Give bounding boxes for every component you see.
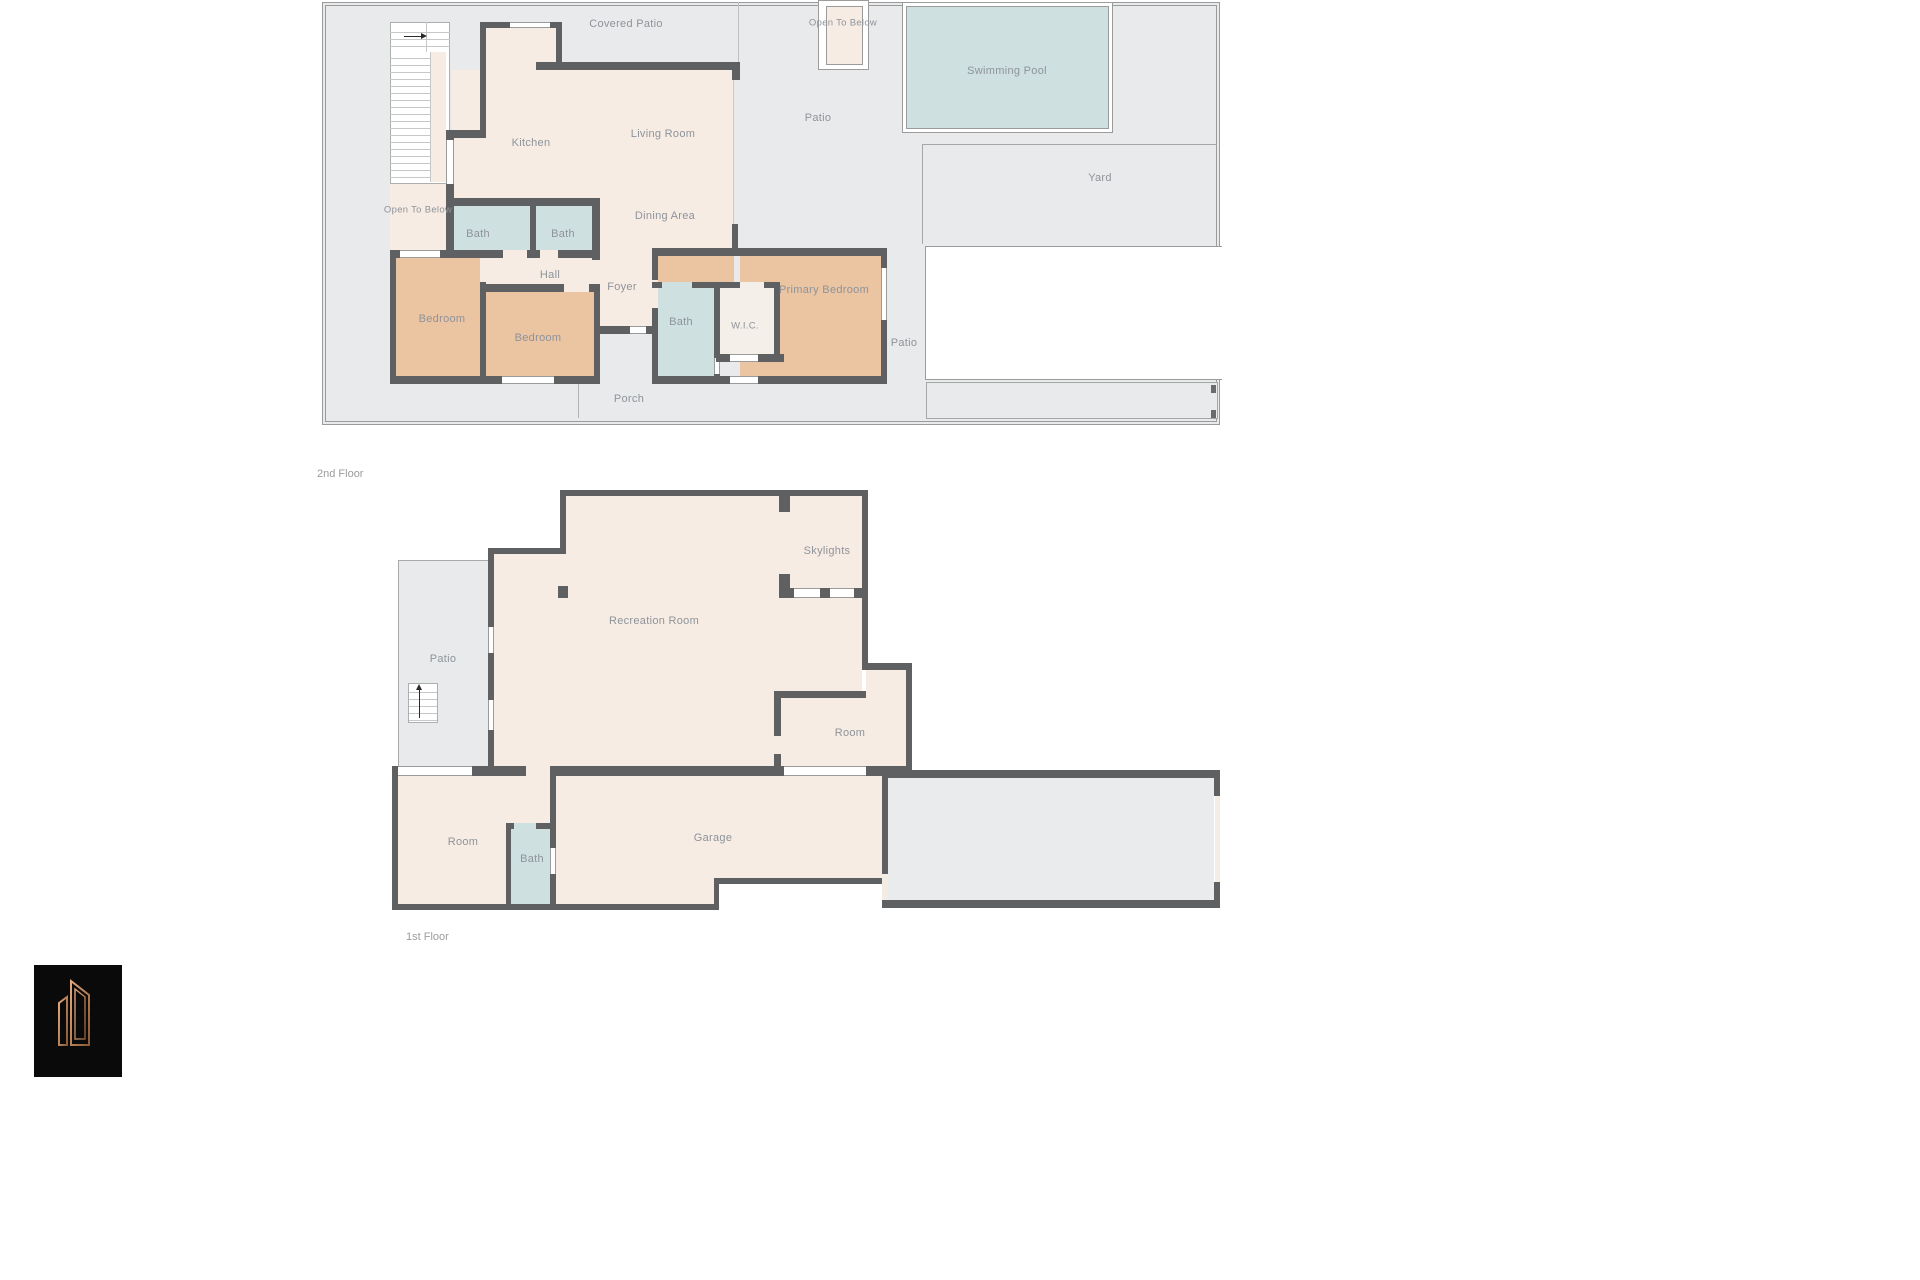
- wall: [536, 62, 732, 70]
- bath-suite-floor: [658, 286, 714, 376]
- wall: [1214, 882, 1220, 908]
- room-label-wic: W.I.C.: [731, 321, 759, 332]
- window: [730, 376, 758, 384]
- window: [630, 326, 646, 334]
- patio-1f: [398, 560, 488, 770]
- logo-building-icon: [56, 977, 100, 1049]
- room-label-porch: Porch: [614, 393, 644, 405]
- wall: [450, 198, 598, 206]
- wall: [488, 548, 566, 554]
- carport-opening: [1215, 796, 1220, 882]
- wall: [392, 776, 398, 910]
- room-label-bedroom-left: Bedroom: [419, 313, 466, 325]
- room-label-living-room: Living Room: [631, 128, 695, 140]
- stair-direction-arrow: [419, 690, 420, 718]
- stair-wall-strip: [430, 52, 446, 182]
- door-opening: [564, 284, 589, 292]
- open-to-below-inner: [826, 6, 863, 65]
- room-label-open-to-below-left: Open To Below: [384, 205, 452, 216]
- wall: [779, 490, 790, 512]
- wall: [506, 823, 511, 906]
- dining-floor: [598, 198, 734, 248]
- stair-treads: [409, 686, 437, 722]
- skylight-window: [794, 588, 820, 598]
- room-label-covered-patio: Covered Patio: [589, 18, 663, 30]
- gate-hinge-icon: [1211, 410, 1216, 418]
- room-label-recreation: Recreation Room: [609, 615, 699, 627]
- window: [446, 140, 454, 184]
- room-label-hall: Hall: [540, 269, 560, 281]
- wall: [488, 554, 494, 770]
- room-label-patio-right: Patio: [891, 337, 918, 349]
- porch-divider: [578, 382, 579, 418]
- bath-hall-floor: [508, 776, 554, 826]
- door-opening: [514, 823, 536, 829]
- door-opening: [503, 250, 527, 258]
- wall: [652, 248, 886, 256]
- wall: [882, 900, 1220, 908]
- wall: [906, 670, 912, 774]
- door-opening: [526, 766, 550, 776]
- open-to-below-box: [818, 0, 869, 70]
- window: [730, 354, 758, 362]
- garage-door-opening: [784, 766, 866, 776]
- wall: [390, 376, 600, 384]
- suite-corridor-floor: [658, 254, 734, 282]
- wall: [882, 770, 1220, 778]
- nook-floor: [866, 666, 908, 696]
- room-label-bath-mid: Bath: [551, 228, 575, 240]
- skylight-window: [830, 588, 854, 598]
- floor2-caption: 2nd Floor: [317, 468, 363, 480]
- room-label-patio-top: Patio: [805, 112, 832, 124]
- garage-step-cut: [719, 884, 889, 908]
- stair-arrow-head-icon: [421, 33, 427, 39]
- window: [488, 700, 494, 730]
- wall: [652, 248, 658, 384]
- bath-left-floor: [452, 204, 532, 254]
- door-opening: [662, 282, 692, 288]
- glass-wall: [733, 70, 734, 246]
- wall: [862, 663, 912, 670]
- window: [510, 22, 550, 28]
- room-label-room-sw: Room: [448, 836, 479, 848]
- carport-floor: [888, 778, 1214, 900]
- room-label-garage: Garage: [694, 832, 733, 844]
- wall: [560, 490, 566, 554]
- door-opening: [540, 250, 558, 258]
- room-label-swimming-pool: Swimming Pool: [967, 65, 1047, 77]
- wall: [480, 22, 486, 138]
- window: [488, 627, 494, 653]
- room-label-open-to-below-top: Open To Below: [809, 18, 877, 29]
- window: [550, 848, 556, 874]
- room-label-yard: Yard: [1088, 172, 1112, 184]
- room-label-bath-left: Bath: [466, 228, 490, 240]
- wall: [774, 691, 781, 774]
- wall: [594, 326, 658, 334]
- room-label-bedroom-mid: Bedroom: [515, 332, 562, 344]
- room-label-bath-suite: Bath: [669, 316, 693, 328]
- stair-treads: [390, 52, 430, 182]
- floor-plan-sheet: Covered Patio Open To Below Swimming Poo…: [0, 0, 1920, 1280]
- window: [502, 376, 554, 384]
- wall: [530, 204, 536, 256]
- wall: [774, 691, 866, 698]
- wall: [732, 62, 740, 80]
- wall: [779, 574, 790, 598]
- wall: [390, 250, 396, 384]
- wall: [719, 878, 888, 884]
- room-label-dining-area: Dining Area: [635, 210, 695, 222]
- wall: [1214, 770, 1220, 796]
- plan-notch: [925, 246, 1222, 380]
- stair-direction-arrow: [404, 36, 421, 37]
- door-opening: [740, 282, 764, 288]
- room-label-room-se: Room: [835, 727, 866, 739]
- room-label-patio-1f: Patio: [430, 653, 457, 665]
- window: [881, 268, 887, 320]
- room-label-bath-1f: Bath: [520, 853, 544, 865]
- floor1-caption: 1st Floor: [406, 931, 449, 943]
- room-label-primary-bedroom: Primary Bedroom: [779, 284, 869, 296]
- gate-hinge-icon: [1211, 385, 1216, 393]
- room-label-kitchen: Kitchen: [512, 137, 551, 149]
- yard-area: [922, 144, 1217, 244]
- wall: [862, 490, 868, 670]
- covered-patio-divider: [738, 2, 739, 62]
- recreation-floor-west: [494, 552, 566, 768]
- stair-arrow-head-icon: [416, 684, 422, 690]
- door-opening: [480, 258, 486, 282]
- open-to-below-floor: [390, 184, 450, 254]
- room-label-skylights: Skylights: [804, 545, 851, 557]
- wall: [652, 376, 887, 384]
- room-label-foyer: Foyer: [607, 281, 637, 293]
- side-yard-strip: [926, 382, 1218, 419]
- stair-treads: [390, 26, 450, 52]
- column: [558, 586, 568, 598]
- door-opening: [774, 736, 781, 754]
- window: [398, 766, 472, 776]
- wall: [550, 768, 556, 910]
- bath-1f-floor: [511, 829, 550, 906]
- wall: [450, 130, 486, 138]
- wall: [562, 490, 868, 496]
- builder-logo: [34, 965, 122, 1077]
- window: [400, 250, 440, 258]
- wall: [594, 284, 600, 384]
